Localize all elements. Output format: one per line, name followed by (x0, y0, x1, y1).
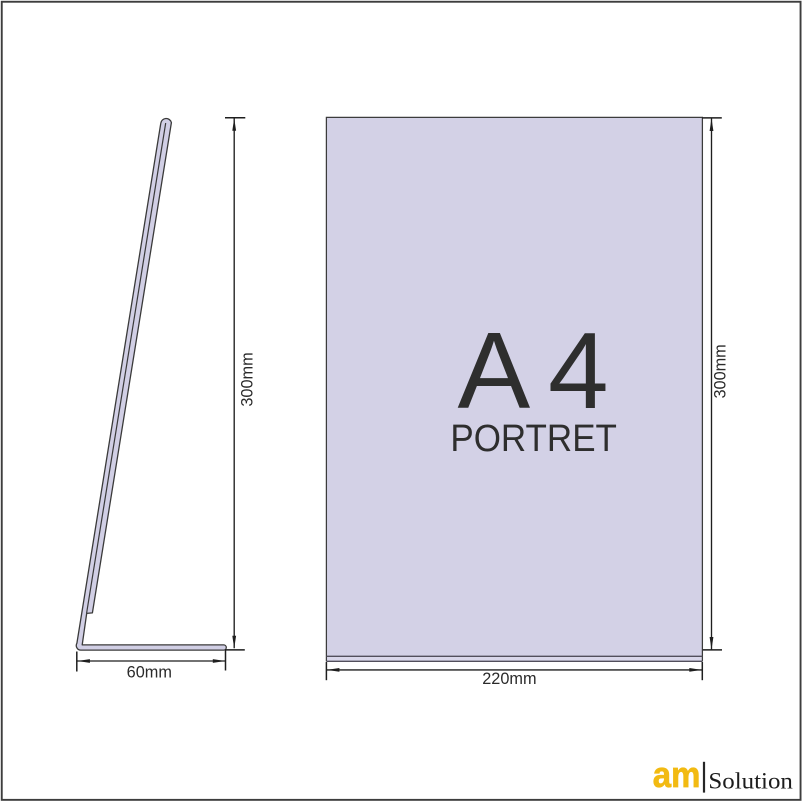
svg-text:4: 4 (548, 310, 609, 432)
svg-text:am: am (653, 754, 701, 795)
svg-text:PORTRET: PORTRET (450, 418, 617, 460)
svg-text:220mm: 220mm (482, 670, 536, 688)
svg-text:A: A (458, 310, 531, 432)
svg-text:300mm: 300mm (239, 352, 257, 406)
svg-text:60mm: 60mm (127, 664, 172, 682)
svg-text:Solution: Solution (708, 768, 793, 794)
svg-text:300mm: 300mm (712, 344, 730, 398)
